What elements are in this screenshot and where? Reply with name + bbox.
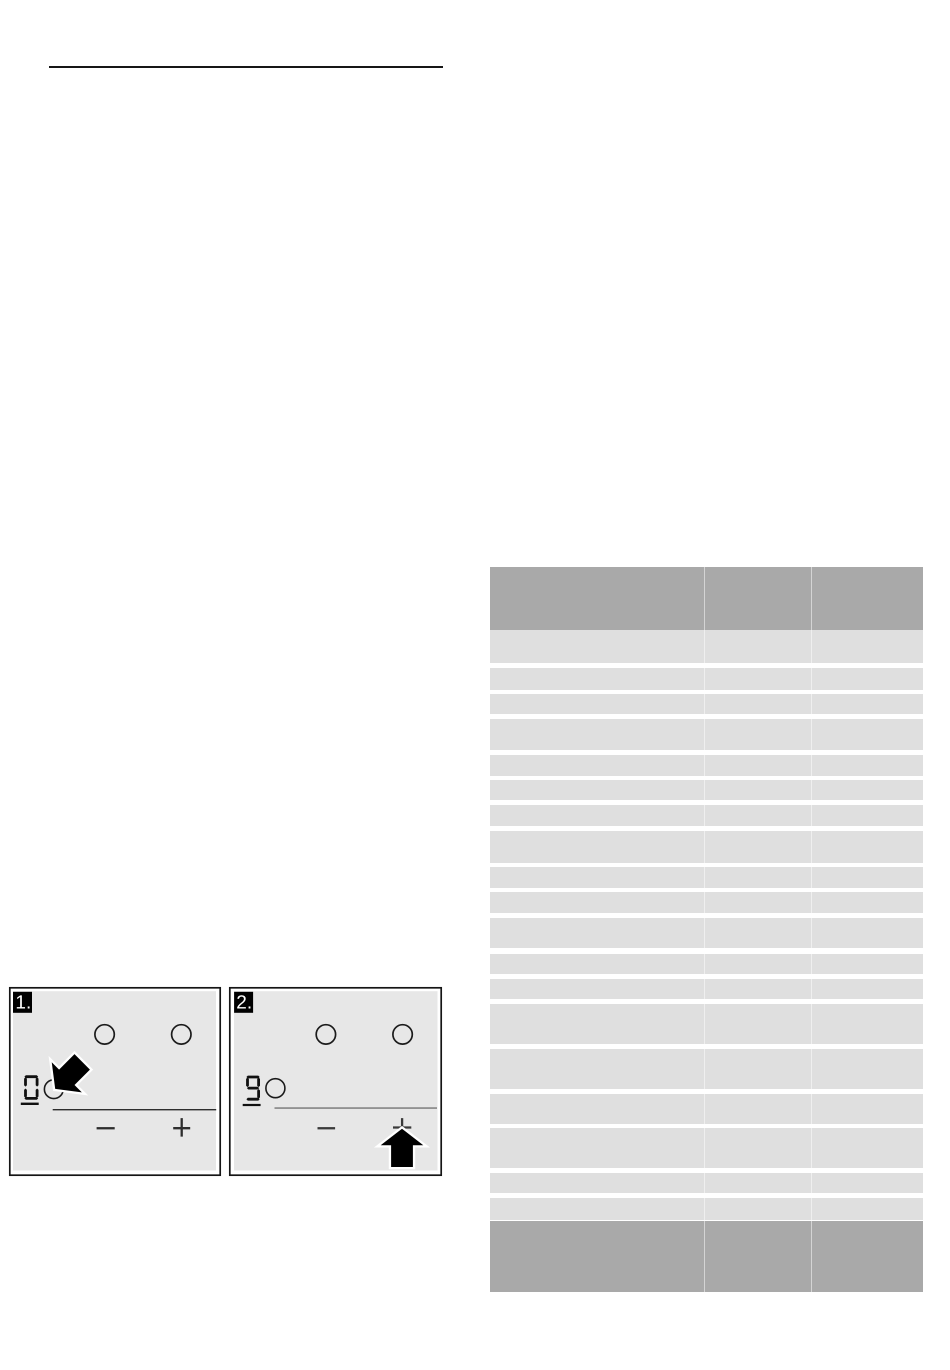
svg-text:1.: 1. <box>15 993 31 1014</box>
svg-text:2.: 2. <box>236 993 252 1014</box>
